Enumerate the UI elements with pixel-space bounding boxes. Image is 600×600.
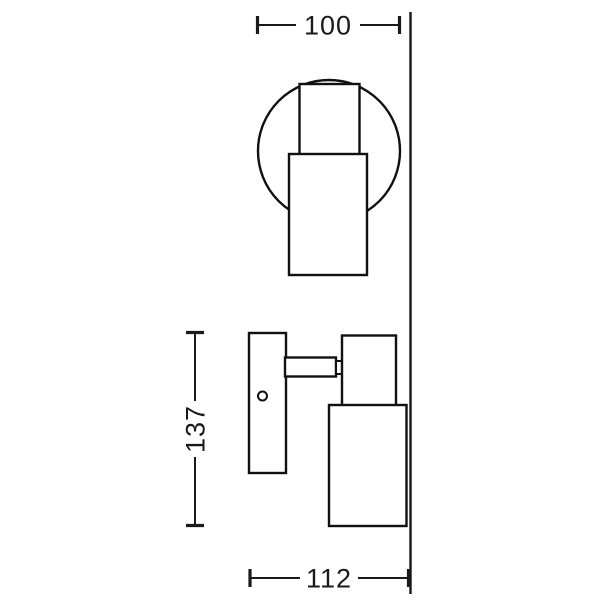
dimension-depth: 112 [250, 564, 409, 594]
side-screw-hole [258, 392, 267, 401]
dimension-height: 137 [181, 333, 211, 526]
front-neck-rect [300, 84, 360, 155]
dimension-width: 100 [258, 11, 400, 41]
front-view [258, 80, 400, 275]
dim-width-label: 100 [304, 11, 352, 41]
fixture-dimension-drawing: 100 137 112 [0, 0, 600, 600]
side-view [249, 333, 407, 526]
side-arm [285, 358, 336, 377]
dim-height-label: 137 [181, 405, 211, 453]
side-body-rect [329, 405, 407, 526]
drawing-page: 100 137 112 [0, 0, 600, 600]
dim-depth-label: 112 [306, 564, 352, 594]
side-head-rect [342, 336, 396, 407]
front-body-rect [289, 154, 367, 275]
side-wall-plate [249, 333, 286, 473]
